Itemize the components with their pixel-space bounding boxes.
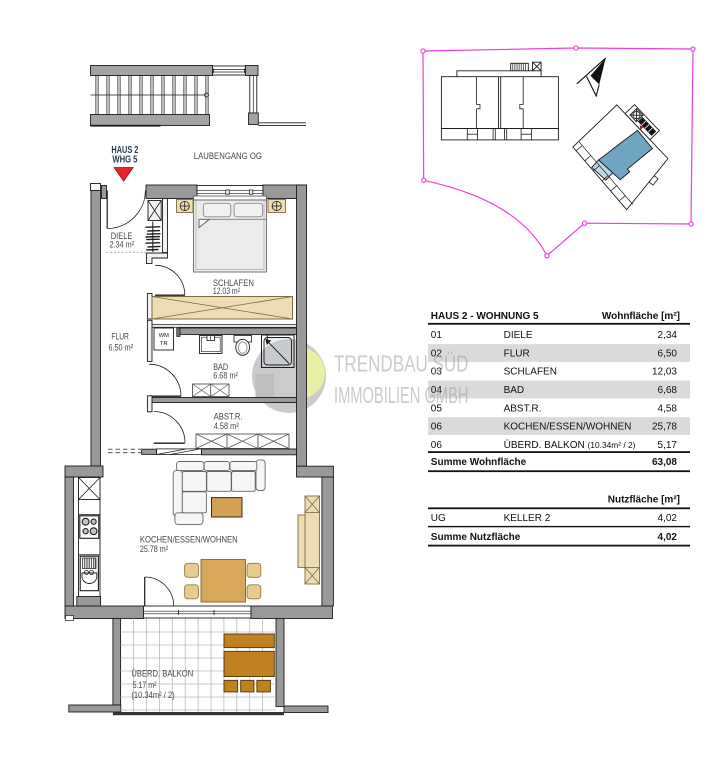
svg-text:4,02: 4,02 bbox=[658, 532, 678, 543]
svg-text:2.34 m²: 2.34 m² bbox=[110, 239, 135, 250]
svg-text:Nutzfläche [m²]: Nutzfläche [m²] bbox=[608, 495, 680, 506]
svg-text:LAUBENGANG OG: LAUBENGANG OG bbox=[194, 150, 262, 161]
svg-text:KELLER 2: KELLER 2 bbox=[504, 513, 551, 524]
svg-text:12,03: 12,03 bbox=[652, 367, 677, 378]
svg-text:TRENDBAU SÜD: TRENDBAU SÜD bbox=[334, 350, 469, 376]
svg-text:HAUS 2 - WOHNUNG 5: HAUS 2 - WOHNUNG 5 bbox=[431, 311, 539, 322]
svg-text:WM: WM bbox=[159, 333, 169, 339]
svg-text:IMMOBILIEN GMBH: IMMOBILIEN GMBH bbox=[334, 382, 469, 408]
svg-text:KOCHEN/ESSEN/WOHNEN: KOCHEN/ESSEN/WOHNEN bbox=[504, 422, 632, 433]
svg-text:6.50 m²: 6.50 m² bbox=[109, 341, 134, 352]
svg-text:SCHLAFEN: SCHLAFEN bbox=[504, 367, 557, 378]
svg-text:FLUR: FLUR bbox=[111, 331, 129, 342]
svg-text:6,68: 6,68 bbox=[658, 385, 678, 396]
svg-text:ÜBERD. BALKON: ÜBERD. BALKON bbox=[131, 668, 193, 679]
svg-text:25.78 m²: 25.78 m² bbox=[140, 543, 168, 554]
svg-text:12.03 m²: 12.03 m² bbox=[213, 285, 240, 296]
svg-text:5,17: 5,17 bbox=[658, 440, 678, 451]
svg-text:25,78: 25,78 bbox=[652, 422, 677, 433]
svg-text:BAD: BAD bbox=[504, 385, 525, 396]
svg-text:(10.34m² / 2): (10.34m² / 2) bbox=[131, 689, 174, 700]
svg-text:06: 06 bbox=[431, 440, 443, 451]
svg-text:TR: TR bbox=[160, 341, 168, 347]
svg-text:UG: UG bbox=[431, 513, 446, 524]
svg-text:Summe Nutzfläche: Summe Nutzfläche bbox=[431, 532, 521, 543]
svg-text:06: 06 bbox=[431, 422, 443, 433]
svg-text:63,08: 63,08 bbox=[652, 457, 677, 468]
svg-text:6,50: 6,50 bbox=[658, 349, 678, 360]
svg-text:4,58: 4,58 bbox=[658, 403, 678, 414]
svg-text:FLUR: FLUR bbox=[504, 349, 530, 360]
svg-text:6.68 m²: 6.68 m² bbox=[213, 370, 238, 381]
svg-text:01: 01 bbox=[431, 330, 443, 341]
svg-text:WHG 5: WHG 5 bbox=[112, 154, 137, 165]
svg-text:2,34: 2,34 bbox=[658, 330, 678, 341]
svg-text:ÜBERD. BALKON (10.34m² / 2): ÜBERD. BALKON (10.34m² / 2) bbox=[504, 439, 636, 451]
svg-text:4.58 m²: 4.58 m² bbox=[214, 420, 239, 431]
svg-text:DIELE: DIELE bbox=[504, 330, 533, 341]
svg-text:4,02: 4,02 bbox=[658, 513, 678, 524]
svg-text:ABST.R.: ABST.R. bbox=[504, 403, 542, 414]
svg-text:Summe Wohnfläche: Summe Wohnfläche bbox=[431, 457, 527, 468]
svg-text:Wohnfläche [m²]: Wohnfläche [m²] bbox=[602, 311, 680, 322]
